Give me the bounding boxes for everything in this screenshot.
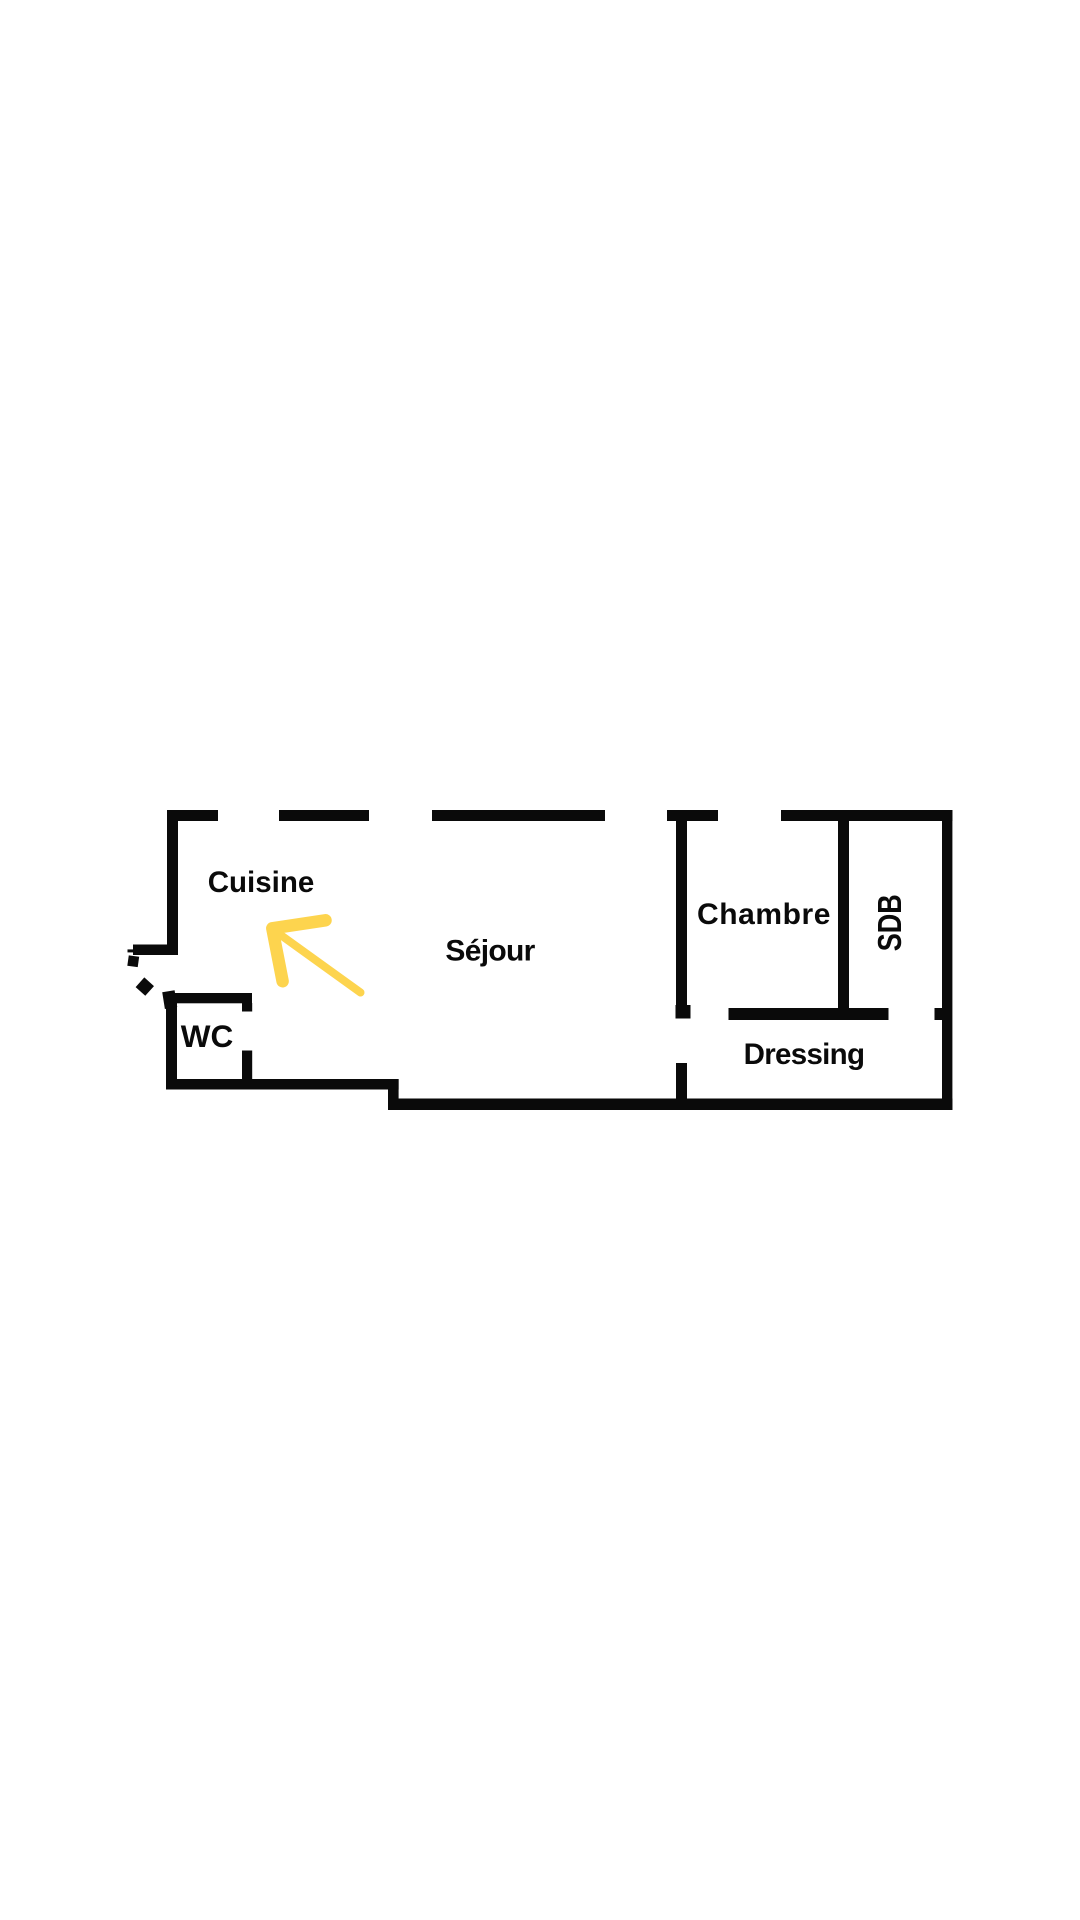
svg-text:Chambre: Chambre: [697, 898, 831, 931]
svg-text:Dressing: Dressing: [744, 1038, 865, 1071]
svg-text:Séjour: Séjour: [445, 934, 535, 967]
svg-text:SDB: SDB: [871, 894, 908, 951]
svg-text:WC: WC: [181, 1018, 233, 1054]
svg-text:Cuisine: Cuisine: [208, 866, 315, 899]
